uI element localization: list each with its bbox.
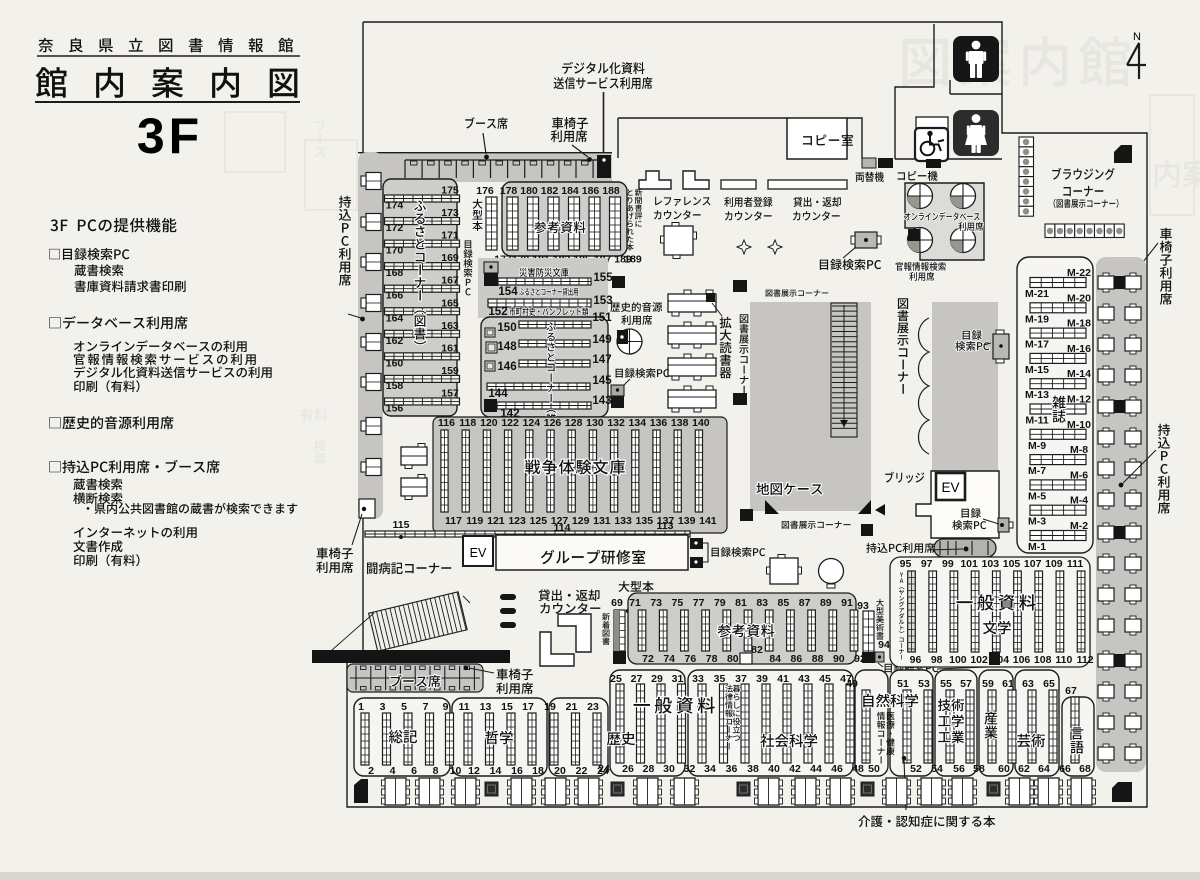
svg-text:8: 8: [433, 765, 439, 777]
svg-text:126: 126: [544, 417, 562, 429]
svg-text:54: 54: [931, 763, 943, 775]
svg-text:87: 87: [799, 597, 811, 609]
svg-text:M-20: M-20: [1067, 292, 1091, 304]
svg-text:164: 164: [386, 312, 404, 324]
svg-text:77: 77: [693, 597, 705, 609]
svg-text:M-13: M-13: [1025, 389, 1049, 401]
svg-text:85: 85: [778, 597, 790, 609]
svg-text:31: 31: [672, 673, 684, 685]
svg-text:86: 86: [791, 653, 803, 665]
svg-text:64: 64: [1038, 763, 1050, 775]
svg-text:169: 169: [441, 252, 459, 264]
svg-text:82: 82: [751, 644, 763, 656]
svg-text:2: 2: [368, 765, 374, 777]
svg-text:94: 94: [878, 639, 890, 651]
svg-text:28: 28: [643, 763, 655, 775]
svg-text:35: 35: [714, 673, 726, 685]
svg-text:132: 132: [607, 417, 625, 429]
svg-text:93: 93: [857, 600, 869, 612]
svg-text:103: 103: [982, 558, 1000, 570]
svg-text:81: 81: [735, 597, 747, 609]
svg-text:60: 60: [998, 763, 1010, 775]
svg-text:18: 18: [532, 765, 544, 777]
svg-text:133: 133: [614, 515, 632, 527]
svg-text:59: 59: [982, 678, 994, 690]
svg-text:175: 175: [441, 185, 459, 197]
svg-text:88: 88: [812, 653, 824, 665]
svg-text:121: 121: [487, 515, 505, 527]
svg-text:M-10: M-10: [1067, 419, 1091, 431]
svg-text:71: 71: [629, 597, 641, 609]
svg-text:29: 29: [651, 673, 663, 685]
svg-text:154: 154: [498, 286, 518, 298]
svg-text:172: 172: [386, 222, 404, 234]
svg-text:23: 23: [587, 701, 599, 713]
svg-text:M-5: M-5: [1028, 490, 1046, 502]
svg-text:20: 20: [554, 765, 566, 777]
svg-text:165: 165: [441, 297, 459, 309]
svg-text:123: 123: [508, 515, 526, 527]
svg-text:117: 117: [445, 515, 462, 527]
svg-text:116: 116: [438, 417, 455, 429]
svg-text:72: 72: [642, 653, 654, 665]
svg-text:62: 62: [1018, 763, 1030, 775]
svg-text:118: 118: [459, 417, 476, 429]
svg-text:46: 46: [831, 763, 843, 775]
svg-text:M-2: M-2: [1070, 520, 1088, 532]
svg-text:186: 186: [582, 185, 600, 197]
svg-text:140: 140: [692, 417, 710, 429]
svg-text:25: 25: [610, 673, 622, 685]
svg-text:150: 150: [497, 322, 516, 334]
svg-text:110: 110: [1055, 654, 1072, 666]
svg-text:51: 51: [897, 678, 909, 690]
svg-text:108: 108: [1034, 654, 1052, 666]
svg-text:63: 63: [1022, 678, 1034, 690]
svg-text:M-11: M-11: [1025, 415, 1049, 427]
svg-text:39: 39: [756, 673, 768, 685]
svg-text:32: 32: [684, 763, 696, 775]
svg-text:128: 128: [565, 417, 583, 429]
svg-text:114: 114: [554, 522, 571, 534]
svg-text:89: 89: [820, 597, 832, 609]
svg-text:102: 102: [970, 654, 988, 666]
svg-text:157: 157: [441, 387, 459, 399]
svg-text:M-17: M-17: [1025, 339, 1049, 351]
svg-text:152: 152: [488, 306, 507, 318]
svg-text:4: 4: [390, 765, 396, 777]
svg-text:57: 57: [960, 678, 972, 690]
svg-text:158: 158: [386, 380, 404, 392]
svg-text:M-22: M-22: [1067, 267, 1091, 279]
svg-text:184: 184: [561, 185, 579, 197]
svg-text:131: 131: [593, 515, 611, 527]
svg-text:68: 68: [1079, 763, 1091, 775]
svg-text:M-19: M-19: [1025, 313, 1049, 325]
svg-text:95: 95: [900, 558, 912, 570]
svg-text:160: 160: [386, 357, 404, 369]
svg-text:182: 182: [541, 185, 559, 197]
svg-text:74: 74: [663, 653, 675, 665]
svg-text:180: 180: [520, 185, 538, 197]
svg-text:67: 67: [1065, 685, 1077, 697]
svg-text:125: 125: [530, 515, 548, 527]
svg-text:90: 90: [833, 653, 845, 665]
svg-text:13: 13: [480, 701, 492, 713]
svg-text:40: 40: [768, 763, 780, 775]
svg-text:134: 134: [629, 417, 647, 429]
svg-text:105: 105: [1003, 558, 1021, 570]
svg-text:M-3: M-3: [1028, 516, 1046, 528]
svg-text:156: 156: [386, 402, 404, 414]
svg-text:98: 98: [931, 654, 943, 666]
svg-text:3F: 3F: [137, 108, 203, 164]
svg-text:48: 48: [852, 763, 864, 775]
svg-text:27: 27: [631, 673, 643, 685]
svg-text:61: 61: [1002, 678, 1014, 690]
svg-text:112: 112: [1077, 654, 1094, 666]
svg-text:30: 30: [663, 763, 675, 775]
svg-text:1: 1: [358, 701, 364, 713]
svg-text:41: 41: [777, 673, 789, 685]
svg-text:136: 136: [650, 417, 668, 429]
svg-text:79: 79: [714, 597, 726, 609]
svg-text:M-15: M-15: [1025, 364, 1049, 376]
svg-text:168: 168: [386, 267, 404, 279]
svg-text:106: 106: [1013, 654, 1031, 666]
svg-text:189: 189: [624, 254, 642, 266]
svg-text:M-8: M-8: [1070, 444, 1088, 456]
svg-text:155: 155: [593, 272, 613, 284]
svg-text:M-6: M-6: [1070, 469, 1088, 481]
svg-text:113: 113: [657, 520, 674, 532]
svg-text:M-7: M-7: [1028, 465, 1046, 477]
svg-text:101: 101: [960, 558, 978, 570]
svg-text:99: 99: [942, 558, 954, 570]
svg-text:15: 15: [501, 701, 513, 713]
svg-text:100: 100: [949, 654, 967, 666]
svg-text:129: 129: [572, 515, 590, 527]
svg-text:124: 124: [523, 417, 541, 429]
svg-text:80: 80: [727, 653, 739, 665]
svg-text:21: 21: [566, 701, 578, 713]
svg-text:M-21: M-21: [1025, 288, 1049, 300]
svg-text:M-12: M-12: [1067, 394, 1091, 406]
svg-text:9: 9: [443, 701, 449, 713]
svg-text:97: 97: [921, 558, 933, 570]
svg-text:153: 153: [593, 295, 612, 307]
svg-text:111: 111: [1067, 558, 1084, 570]
svg-text:M-18: M-18: [1067, 318, 1091, 330]
svg-text:171: 171: [441, 230, 459, 242]
svg-text:49: 49: [846, 678, 858, 690]
svg-text:166: 166: [386, 290, 404, 302]
svg-text:36: 36: [726, 763, 738, 775]
svg-text:M-1: M-1: [1028, 541, 1046, 553]
svg-text:65: 65: [1043, 678, 1055, 690]
svg-text:M-16: M-16: [1067, 343, 1091, 355]
svg-text:162: 162: [386, 335, 404, 347]
svg-text:17: 17: [522, 701, 534, 713]
svg-text:122: 122: [501, 417, 519, 429]
svg-text:83: 83: [756, 597, 768, 609]
svg-text:188: 188: [602, 185, 620, 197]
svg-text:145: 145: [592, 375, 612, 387]
svg-text:91: 91: [841, 597, 853, 609]
svg-text:176: 176: [476, 185, 494, 197]
svg-text:N: N: [1133, 31, 1141, 43]
svg-text:119: 119: [466, 515, 483, 527]
svg-text:11: 11: [458, 701, 469, 713]
svg-text:135: 135: [636, 515, 654, 527]
svg-text:56: 56: [953, 763, 965, 775]
svg-text:76: 76: [685, 653, 697, 665]
svg-text:107: 107: [1024, 558, 1042, 570]
svg-text:33: 33: [692, 673, 704, 685]
svg-text:161: 161: [441, 342, 459, 354]
svg-text:139: 139: [678, 515, 696, 527]
svg-text:12: 12: [468, 765, 480, 777]
svg-text:151: 151: [592, 312, 612, 324]
svg-text:120: 120: [480, 417, 498, 429]
svg-text:143: 143: [592, 395, 611, 407]
svg-text:144: 144: [488, 388, 508, 400]
svg-text:96: 96: [910, 654, 922, 666]
svg-text:3: 3: [380, 701, 386, 713]
svg-text:42: 42: [789, 763, 801, 775]
svg-text:22: 22: [576, 765, 588, 777]
svg-text:5: 5: [401, 701, 407, 713]
svg-text:170: 170: [386, 245, 404, 257]
svg-text:174: 174: [386, 200, 404, 212]
svg-text:138: 138: [671, 417, 689, 429]
svg-text:45: 45: [819, 673, 831, 685]
svg-text:159: 159: [441, 365, 459, 377]
svg-text:M-9: M-9: [1028, 440, 1046, 452]
svg-text:43: 43: [798, 673, 810, 685]
svg-text:M-4: M-4: [1070, 495, 1088, 507]
svg-text:146: 146: [497, 361, 516, 373]
svg-text:78: 78: [706, 653, 718, 665]
svg-text:6: 6: [411, 765, 417, 777]
svg-text:37: 37: [735, 673, 747, 685]
svg-text:M-14: M-14: [1067, 368, 1091, 380]
svg-text:EV: EV: [941, 480, 959, 495]
svg-text:24: 24: [598, 763, 610, 775]
svg-text:147: 147: [592, 354, 611, 366]
svg-text:109: 109: [1045, 558, 1063, 570]
svg-text:14: 14: [490, 765, 502, 777]
svg-text:167: 167: [441, 275, 459, 287]
svg-text:130: 130: [586, 417, 604, 429]
svg-text:7: 7: [423, 701, 429, 713]
svg-text:53: 53: [918, 678, 930, 690]
svg-text:141: 141: [699, 515, 717, 527]
svg-text:26: 26: [622, 763, 634, 775]
svg-text:EV: EV: [470, 546, 487, 560]
svg-text:50: 50: [868, 763, 880, 775]
svg-text:19: 19: [544, 701, 556, 713]
svg-text:34: 34: [704, 763, 716, 775]
svg-text:44: 44: [810, 763, 822, 775]
svg-text:69: 69: [611, 597, 623, 609]
svg-text:163: 163: [441, 320, 459, 332]
svg-text:55: 55: [940, 678, 952, 690]
svg-text:148: 148: [497, 341, 517, 353]
svg-text:58: 58: [973, 763, 985, 775]
svg-text:66: 66: [1059, 763, 1071, 775]
svg-text:16: 16: [511, 765, 523, 777]
svg-text:73: 73: [650, 597, 662, 609]
svg-text:115: 115: [393, 519, 410, 531]
svg-text:38: 38: [747, 763, 759, 775]
svg-text:84: 84: [769, 653, 781, 665]
svg-text:75: 75: [672, 597, 684, 609]
svg-text:173: 173: [441, 207, 459, 219]
svg-text:178: 178: [500, 185, 518, 197]
svg-text:10: 10: [450, 765, 462, 777]
svg-text:52: 52: [910, 763, 922, 775]
svg-text:149: 149: [592, 334, 611, 346]
